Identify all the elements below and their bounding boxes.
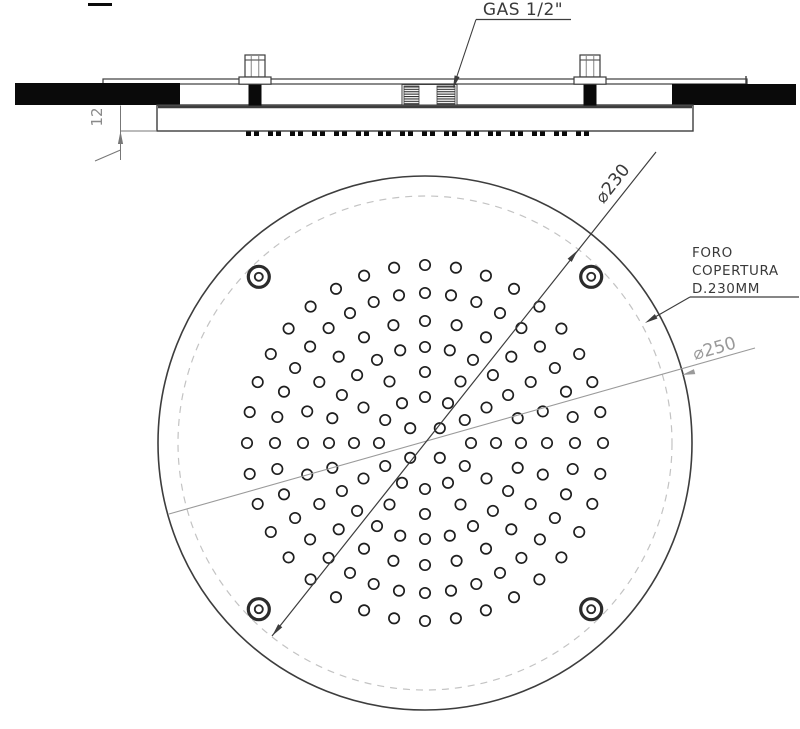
- nozzle-hole: [374, 438, 384, 448]
- nozzle-hole: [420, 484, 430, 494]
- nozzle-hole: [270, 438, 280, 448]
- nozzle-mark: [408, 132, 413, 137]
- nozzle-hole: [420, 367, 430, 377]
- nozzle-hole: [509, 284, 519, 294]
- nozzle-mark: [386, 132, 391, 137]
- nozzle-mark: [422, 132, 427, 137]
- nozzle-hole: [358, 402, 368, 412]
- nozzle-hole: [451, 320, 461, 330]
- nozzle-hole: [266, 527, 276, 537]
- nozzle-hole: [389, 613, 399, 623]
- nozzle-hole: [568, 412, 578, 422]
- foro-copertura-callout: FORO COPERTURA D.230MM: [645, 245, 799, 323]
- nozzle-hole: [538, 469, 548, 479]
- nozzle-hole: [420, 509, 430, 519]
- nozzle-hole: [323, 323, 333, 333]
- nozzle-mark: [254, 132, 259, 137]
- gas-callout: GAS 1/2": [453, 0, 571, 89]
- nozzle-hole: [372, 521, 382, 531]
- nozzle-hole: [443, 478, 453, 488]
- nozzle-hole: [556, 552, 566, 562]
- nozzle-hole: [503, 390, 513, 400]
- nozzle-hole: [516, 553, 526, 563]
- nozzle-hole: [324, 438, 334, 448]
- bolt-head: [580, 55, 600, 77]
- nozzle-hole: [466, 438, 476, 448]
- nozzle-hole: [420, 288, 430, 298]
- nozzle-hole: [468, 521, 478, 531]
- nozzle-mark: [466, 132, 471, 137]
- nozzle-hole: [279, 387, 289, 397]
- nozzle-hole: [561, 387, 571, 397]
- nozzle-hole: [488, 370, 498, 380]
- nozzle-hole: [420, 392, 430, 402]
- nozzle-mark: [276, 132, 281, 137]
- nozzle-hole: [253, 377, 263, 387]
- nozzle-hole: [509, 592, 519, 602]
- nozzle-mark: [540, 132, 545, 137]
- nozzle-hole: [587, 377, 597, 387]
- nozzle-hole: [337, 390, 347, 400]
- nozzle-hole: [481, 544, 491, 554]
- gas-label: GAS 1/2": [483, 0, 563, 20]
- nozzle-hole: [516, 438, 526, 448]
- nozzle-hole: [349, 438, 359, 448]
- dimension-12: 12: [88, 106, 156, 162]
- dim250-value: ⌀250: [691, 334, 739, 365]
- nozzle-hole: [352, 506, 362, 516]
- nozzle-hole: [253, 499, 263, 509]
- dim12-value: 12: [88, 107, 106, 126]
- nozzle-hole: [345, 568, 355, 578]
- nozzle-hole: [420, 588, 430, 598]
- nozzle-mark: [554, 132, 559, 137]
- nozzle-hole: [389, 263, 399, 273]
- nozzle-hole: [327, 413, 337, 423]
- bolt-head: [245, 55, 265, 77]
- nozzle-hole: [305, 341, 315, 351]
- nozzle-hole: [331, 284, 341, 294]
- nozzle-hole: [481, 402, 491, 412]
- nozzle-hole: [272, 412, 282, 422]
- foro-line3: D.230MM: [692, 281, 760, 297]
- bolt-flange: [239, 77, 271, 84]
- nozzle-mark: [342, 132, 347, 137]
- nozzle-hole: [481, 271, 491, 281]
- nozzle-mark: [510, 132, 515, 137]
- nozzle-hole: [290, 363, 300, 373]
- nozzle-hole: [542, 438, 552, 448]
- nozzle-hole: [283, 552, 293, 562]
- screw-inner-hole: [587, 273, 595, 281]
- nozzle-hole: [394, 290, 404, 300]
- nozzle-hole: [359, 605, 369, 615]
- nozzle-mark: [290, 132, 295, 137]
- nozzle-hole: [266, 349, 276, 359]
- dim230-value: ⌀230: [592, 160, 635, 207]
- nozzle-hole: [451, 613, 461, 623]
- nozzle-hole: [272, 464, 282, 474]
- nozzle-hole: [460, 461, 470, 471]
- nozzle-hole: [314, 377, 324, 387]
- nozzle-mark: [444, 132, 449, 137]
- nozzle-hole: [574, 527, 584, 537]
- shower-body: [157, 105, 693, 131]
- thread-section-left: [404, 86, 419, 105]
- nozzle-hole: [405, 423, 415, 433]
- nozzle-hole: [314, 499, 324, 509]
- nozzle-hole: [445, 531, 455, 541]
- nozzle-mark: [298, 132, 303, 137]
- nozzle-hole: [568, 464, 578, 474]
- nozzle-hole: [345, 308, 355, 318]
- nozzle-hole: [495, 568, 505, 578]
- nozzle-hole: [556, 323, 566, 333]
- nozzle-hole: [395, 345, 405, 355]
- nozzle-hole: [245, 407, 255, 417]
- nozzle-hole: [420, 560, 430, 570]
- nozzle-mark: [474, 132, 479, 137]
- nozzle-hole: [471, 297, 481, 307]
- nozzle-hole: [435, 453, 445, 463]
- nozzle-hole: [384, 499, 394, 509]
- nozzle-hole: [395, 531, 405, 541]
- nozzle-hole: [481, 473, 491, 483]
- thread-section-right: [437, 86, 455, 105]
- foro-line1: FORO: [692, 245, 733, 261]
- nozzle-hole: [420, 534, 430, 544]
- nozzle-hole: [471, 579, 481, 589]
- nozzle-hole: [397, 478, 407, 488]
- dim12-arrow: [118, 131, 123, 144]
- nozzle-hole: [283, 323, 293, 333]
- nozzle-hole: [384, 376, 394, 386]
- nozzle-mark: [518, 132, 523, 137]
- nozzle-hole: [242, 438, 252, 448]
- nozzle-mark: [320, 132, 325, 137]
- nozzle-hole: [468, 355, 478, 365]
- nozzle-mark: [576, 132, 581, 137]
- ceiling-section-left: [15, 83, 180, 105]
- nozzle-hole: [506, 524, 516, 534]
- nozzle-hole: [587, 499, 597, 509]
- plan-view: ⌀250 ⌀230 FORO COPERTURA D.230MM: [158, 152, 799, 710]
- nozzle-hole: [369, 297, 379, 307]
- nozzle-hole: [298, 438, 308, 448]
- nozzle-hole: [481, 605, 491, 615]
- nozzle-hole: [397, 398, 407, 408]
- nozzle-hole: [446, 586, 456, 596]
- nozzle-hole: [388, 320, 398, 330]
- nozzle-hole: [455, 499, 465, 509]
- nozzle-mark: [430, 132, 435, 137]
- nozzle-hole: [420, 616, 430, 626]
- nozzle-mark: [532, 132, 537, 137]
- dim250-arrow: [682, 369, 695, 375]
- nozzle-hole: [323, 553, 333, 563]
- nozzle-mark: [452, 132, 457, 137]
- foro-line2: COPERTURA: [692, 263, 779, 279]
- screw-inner-hole: [255, 273, 263, 281]
- nozzle-hole: [358, 473, 368, 483]
- nozzle-hole: [369, 579, 379, 589]
- mounting-plate: [103, 79, 747, 84]
- bolt-shaft: [249, 84, 262, 106]
- nozzle-hole: [495, 308, 505, 318]
- nozzle-hole: [526, 499, 536, 509]
- nozzle-hole: [561, 489, 571, 499]
- nozzle-strip: [246, 132, 589, 137]
- nozzle-hole: [305, 534, 315, 544]
- nozzle-hole: [526, 377, 536, 387]
- nozzle-hole: [451, 556, 461, 566]
- nozzle-hole: [334, 352, 344, 362]
- nozzle-hole: [352, 370, 362, 380]
- nozzle-hole: [534, 574, 544, 584]
- nozzle-hole: [598, 438, 608, 448]
- side-view: 12 GAS 1/2": [15, 0, 796, 161]
- nozzle-hole: [331, 592, 341, 602]
- nozzle-hole: [535, 534, 545, 544]
- bolt-flange: [574, 77, 606, 84]
- nozzle-hole: [279, 489, 289, 499]
- nozzle-mark: [364, 132, 369, 137]
- water-inlet-fitting: [402, 85, 457, 106]
- nozzle-mark: [356, 132, 361, 137]
- nozzle-hole: [245, 469, 255, 479]
- nozzle-hole: [420, 260, 430, 270]
- nozzle-hole: [394, 586, 404, 596]
- nozzle-hole: [570, 438, 580, 448]
- nozzle-hole: [420, 342, 430, 352]
- nozzle-hole: [506, 352, 516, 362]
- nozzle-hole: [503, 486, 513, 496]
- nozzle-mark: [496, 132, 501, 137]
- nozzle-hole: [595, 407, 605, 417]
- nozzle-mark: [334, 132, 339, 137]
- nozzle-hole: [460, 415, 470, 425]
- nozzle-hole: [595, 469, 605, 479]
- nozzle-hole: [302, 406, 312, 416]
- nozzle-hole: [334, 524, 344, 534]
- nozzle-hole: [574, 349, 584, 359]
- nozzle-mark: [400, 132, 405, 137]
- nozzle-hole: [446, 290, 456, 300]
- nozzle-hole: [359, 544, 369, 554]
- dim12-leader-tail: [95, 150, 121, 161]
- nozzle-hole: [359, 332, 369, 342]
- nozzle-hole: [372, 355, 382, 365]
- nozzle-hole: [488, 506, 498, 516]
- nozzle-hole: [388, 556, 398, 566]
- nozzle-hole: [337, 486, 347, 496]
- nozzle-hole: [535, 341, 545, 351]
- nozzle-hole: [445, 345, 455, 355]
- top-reference-tick: [88, 3, 112, 6]
- nozzle-hole: [380, 415, 390, 425]
- nozzle-mark: [312, 132, 317, 137]
- nozzle-mark: [246, 132, 251, 137]
- nozzle-mark: [562, 132, 567, 137]
- nozzle-hole: [305, 301, 315, 311]
- nozzle-mark: [268, 132, 273, 137]
- shower-head-technical-drawing: 12 GAS 1/2" ⌀250 ⌀230: [0, 0, 800, 729]
- nozzle-mark: [584, 132, 589, 137]
- nozzle-hole: [516, 323, 526, 333]
- screw-inner-hole: [587, 605, 595, 613]
- nozzle-hole: [491, 438, 501, 448]
- nozzle-hole: [513, 463, 523, 473]
- nozzle-hole: [443, 398, 453, 408]
- nozzle-hole: [481, 332, 491, 342]
- nozzle-hole: [550, 513, 560, 523]
- ceiling-section-right: [672, 84, 796, 105]
- bolt-shaft: [584, 84, 597, 106]
- gas-leader-line: [455, 20, 476, 83]
- nozzle-hole: [550, 363, 560, 373]
- nozzle-hole: [451, 263, 461, 273]
- nozzle-hole: [290, 513, 300, 523]
- nozzle-mark: [488, 132, 493, 137]
- screw-inner-hole: [255, 605, 263, 613]
- nozzle-hole: [380, 461, 390, 471]
- nozzle-hole: [455, 376, 465, 386]
- nozzle-hole: [420, 316, 430, 326]
- nozzle-hole: [359, 271, 369, 281]
- nozzle-mark: [378, 132, 383, 137]
